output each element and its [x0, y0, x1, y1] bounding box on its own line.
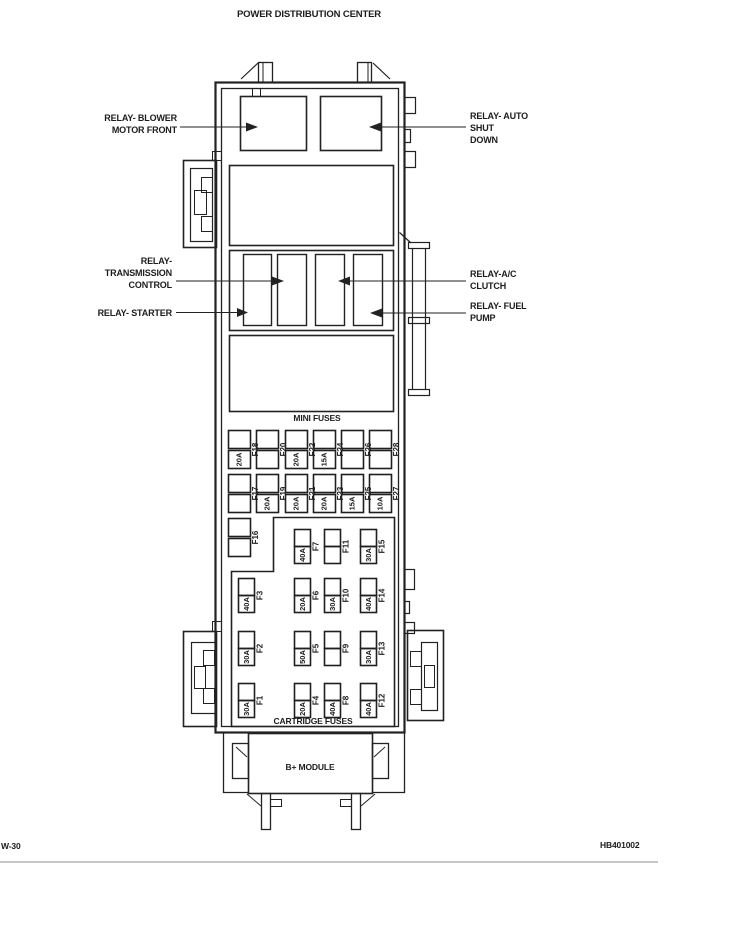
footer-figure-code: HB401002: [600, 840, 640, 850]
arrow-auto-shutdown: [369, 123, 381, 132]
svg-text:20A: 20A: [298, 702, 307, 716]
svg-text:15A: 15A: [348, 496, 357, 510]
arrow-blower: [246, 123, 258, 132]
svg-text:F28: F28: [392, 442, 401, 456]
svg-text:F8: F8: [342, 695, 351, 705]
cartridge-fuse-F9: F9: [325, 632, 351, 666]
mini-relay-section: [230, 251, 394, 331]
svg-text:F27: F27: [392, 486, 401, 500]
label-fuel-pump: RELAY- FUEL: [470, 301, 527, 311]
mini-fuse-F20: F20: [257, 431, 289, 469]
svg-text:PUMP: PUMP: [470, 313, 496, 323]
svg-text:DOWN: DOWN: [470, 135, 498, 145]
svg-text:40A: 40A: [364, 597, 373, 611]
svg-text:CONTROL: CONTROL: [129, 280, 173, 290]
pdc-diagram: POWER DISTRIBUTION CENTER: [0, 0, 751, 929]
svg-text:F16: F16: [251, 530, 260, 544]
svg-text:40A: 40A: [364, 702, 373, 716]
b-module: [224, 733, 405, 830]
cartridge-fuse-F13: 30AF13: [361, 632, 387, 666]
relay-ac-clutch-slot: [316, 255, 345, 326]
mini-fuse-F21: 20AF21: [286, 475, 318, 513]
cartridge-fuse-F15: 30AF15: [361, 530, 387, 564]
cartridge-fuse-F5: 50AF5: [295, 632, 321, 666]
cartridge-fuse-F1: 30AF1: [239, 684, 265, 718]
svg-text:F6: F6: [312, 590, 321, 600]
b-module-label: B+ MODULE: [286, 762, 335, 772]
relay-transmission-slot: [278, 255, 307, 326]
right-side-tabs: [405, 98, 416, 634]
mini-fuses-label: MINI FUSES: [293, 413, 341, 423]
svg-text:F14: F14: [378, 588, 387, 602]
top-mounting-posts: [241, 63, 390, 83]
manual-page: POWER DISTRIBUTION CENTER: [0, 0, 751, 929]
label-starter: RELAY- STARTER: [98, 308, 173, 318]
svg-text:30A: 30A: [242, 650, 251, 664]
label-ac-clutch: RELAY-A/C: [470, 269, 517, 279]
svg-text:10A: 10A: [376, 496, 385, 510]
svg-text:F9: F9: [342, 643, 351, 653]
cartridge-fuse-F2: 30AF2: [239, 632, 265, 666]
cartridge-fuse-F7: 40AF7: [295, 530, 321, 564]
cartridge-fuse-F14: 40AF14: [361, 579, 387, 613]
relay-starter-slot: [244, 255, 272, 326]
upper-blank-section: [230, 166, 394, 246]
svg-text:40A: 40A: [328, 702, 337, 716]
footer-page-code: W-30: [1, 841, 21, 851]
cartridge-fuse-F3: 40AF3: [239, 579, 265, 613]
svg-text:F11: F11: [342, 539, 351, 553]
svg-text:TRANSMISSION: TRANSMISSION: [105, 268, 172, 278]
right-leg: [352, 794, 361, 830]
svg-text:40A: 40A: [242, 597, 251, 611]
svg-text:30A: 30A: [242, 702, 251, 716]
mini-fuse-F27: 10AF27: [370, 475, 402, 513]
page-title: POWER DISTRIBUTION CENTER: [237, 9, 381, 20]
relay-auto-shutdown-square: [321, 97, 382, 151]
svg-text:SHUT: SHUT: [470, 123, 495, 133]
svg-text:20A: 20A: [292, 496, 301, 510]
cartridge-fuse-F11: F11: [325, 530, 351, 564]
svg-text:20A: 20A: [292, 452, 301, 466]
label-blower: RELAY- BLOWER: [104, 113, 177, 123]
svg-text:15A: 15A: [320, 452, 329, 466]
svg-text:20A: 20A: [263, 496, 272, 510]
fuse-layer: 20AF18F2020AF2215AF24F26F28F1720AF1920AF…: [229, 431, 402, 718]
arrow-fuel-pump: [370, 309, 382, 318]
cartridge-fuse-F8: 40AF8: [325, 684, 351, 718]
svg-text:F10: F10: [342, 588, 351, 602]
left-leg: [262, 794, 271, 830]
svg-text:30A: 30A: [364, 650, 373, 664]
callout-labels: RELAY- BLOWER MOTOR FRONT RELAY- AUTO SH…: [98, 111, 529, 323]
label-transmission: RELAY-: [141, 256, 172, 266]
svg-text:F12: F12: [378, 693, 387, 707]
mini-fuse-F23: 20AF23: [314, 475, 346, 513]
svg-text:F7: F7: [312, 541, 321, 551]
svg-text:F3: F3: [256, 590, 265, 600]
lower-blank-section: [230, 336, 394, 412]
mini-fuse-F26: F26: [342, 431, 374, 469]
svg-text:F13: F13: [378, 641, 387, 655]
cartridge-fuse-F10: 30AF10: [325, 579, 351, 613]
svg-text:50A: 50A: [298, 650, 307, 664]
arrow-starter: [237, 308, 248, 317]
svg-text:CLUTCH: CLUTCH: [470, 281, 506, 291]
svg-text:F4: F4: [312, 695, 321, 705]
label-auto-shutdown: RELAY- AUTO: [470, 111, 528, 121]
cartridge-fuse-F6: 20AF6: [295, 579, 321, 613]
svg-text:20A: 20A: [320, 496, 329, 510]
svg-text:MOTOR FRONT: MOTOR FRONT: [112, 125, 178, 135]
right-lower-connector: [408, 631, 444, 721]
mini-fuse-F28: F28: [370, 431, 402, 469]
mini-fuse-F17: F17: [229, 475, 261, 513]
left-lower-connector: [184, 622, 222, 727]
left-upper-connector: [184, 152, 222, 248]
svg-text:F15: F15: [378, 539, 387, 553]
svg-text:20A: 20A: [235, 452, 244, 466]
svg-text:F1: F1: [256, 695, 265, 705]
mini-fuse-F18: 20AF18: [229, 431, 261, 469]
mini-fuse-F24: 15AF24: [314, 431, 346, 469]
svg-text:30A: 30A: [328, 597, 337, 611]
mini-fuse-F16: F16: [229, 519, 261, 557]
cartridge-fuse-F4: 20AF4: [295, 684, 321, 718]
svg-text:20A: 20A: [298, 597, 307, 611]
svg-text:40A: 40A: [298, 548, 307, 562]
svg-text:30A: 30A: [364, 548, 373, 562]
cartridge-fuse-F12: 40AF12: [361, 684, 387, 718]
mini-fuse-F25: 15AF25: [342, 475, 374, 513]
mini-fuse-F19: 20AF19: [257, 475, 289, 513]
svg-text:F5: F5: [312, 643, 321, 653]
svg-text:F2: F2: [256, 643, 265, 653]
mini-fuse-F22: 20AF22: [286, 431, 318, 469]
relay-blower-square: [241, 89, 307, 151]
